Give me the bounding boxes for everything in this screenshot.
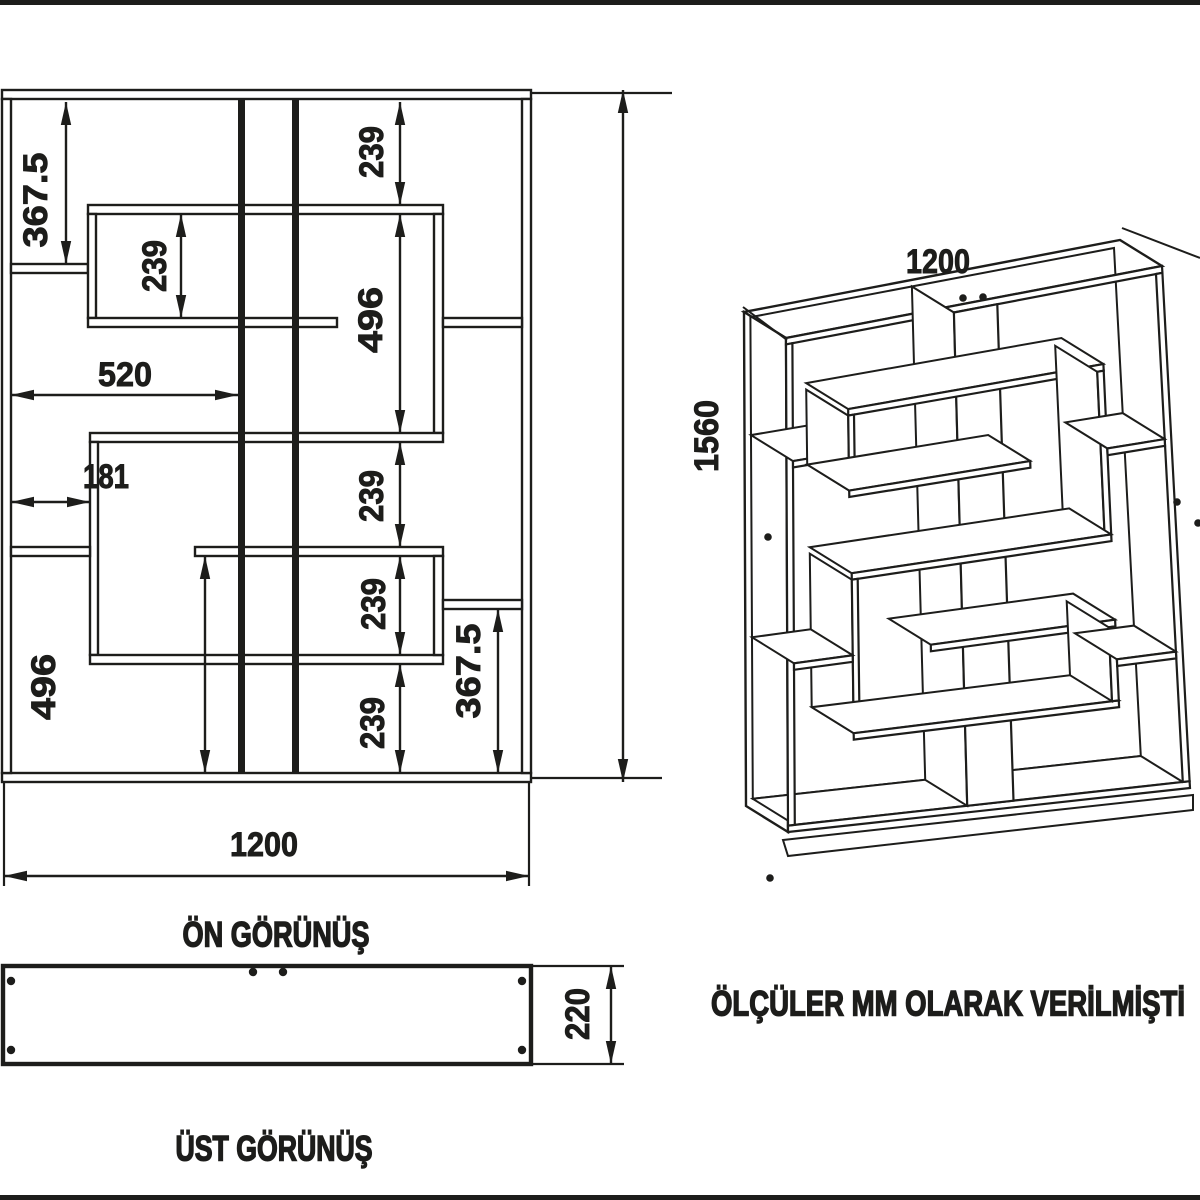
front-member-shelf-b: [11, 547, 90, 556]
top-view-title: ÜST GÖRÜNÜŞ: [176, 1130, 373, 1169]
hole-dot: [279, 968, 287, 976]
dim-label: 367.5: [17, 153, 55, 248]
front-member-shelf-a: [11, 264, 88, 273]
dim-arrow: [395, 556, 405, 579]
front-member-boxu-top: [88, 205, 443, 214]
front-member-divider-v2: [292, 99, 299, 773]
dim-arrow: [395, 214, 405, 237]
dimension-496: 496: [352, 214, 405, 433]
dim-arrow: [11, 497, 34, 507]
hole-dot: [518, 977, 526, 985]
dim-arrow: [395, 750, 405, 773]
dimension-239: 239: [353, 442, 405, 547]
dim-arrow: [606, 1041, 616, 1064]
dimension-239: 239: [353, 102, 405, 205]
page-border-bar: [0, 1195, 1200, 1200]
dim-arrow: [395, 410, 405, 433]
dim-arrow: [4, 871, 27, 881]
hole-dot: [518, 1046, 526, 1054]
front-member-boxu-right: [434, 214, 443, 433]
iso-view: 1200: [743, 228, 1200, 882]
dim-arrow: [61, 102, 71, 125]
iso-frame-left: [786, 343, 795, 825]
dim-label: 367.5: [450, 624, 488, 719]
fitting-dot: [959, 294, 967, 302]
dimension-239: 239: [136, 214, 186, 318]
top-view: 220: [3, 966, 624, 1064]
dim-label: 496: [25, 654, 63, 720]
iso-width-label: 1200: [906, 243, 970, 281]
dim-label: 220: [559, 988, 597, 1040]
dim-label: 496: [352, 287, 390, 353]
fitting-dot: [766, 874, 774, 882]
dimension-520: 520: [11, 356, 238, 400]
dim-label: 239: [353, 126, 391, 178]
dim-arrow: [395, 632, 405, 655]
dimension-367.5: 367.5: [17, 102, 71, 264]
dim-arrow: [11, 390, 34, 400]
fitting-dot: [1194, 519, 1200, 527]
front-view-title: ÖN GÖRÜNÜŞ: [183, 916, 370, 955]
fitting-dot: [979, 293, 987, 301]
dim-label: 1200: [230, 826, 298, 864]
dim-label: 181: [83, 458, 129, 496]
dim-arrow: [395, 524, 405, 547]
dim-arrow: [493, 609, 503, 632]
dim-arrow: [200, 750, 210, 773]
front-member-frame-bottom: [2, 773, 531, 782]
dim-arrow: [61, 241, 71, 264]
front-member-shelf-m-right: [434, 556, 443, 655]
hole-dot: [7, 977, 15, 985]
top-view-panel: [3, 966, 531, 1064]
front-member-frame-left: [2, 99, 11, 773]
fitting-dot: [764, 533, 772, 541]
dim-label: 1560: [688, 400, 726, 472]
dim-label: 239: [355, 578, 393, 630]
front-view: 367.5239239496520181239239239367.5496156…: [2, 90, 726, 886]
dimension-1560: 1560: [618, 90, 726, 782]
dim-arrow: [493, 750, 503, 773]
fitting-dot: [1173, 498, 1181, 506]
dimension-1200: 1200: [4, 826, 529, 881]
front-member-boxl-bottom: [90, 655, 443, 664]
dim-arrow: [200, 556, 210, 579]
dim-label: 239: [354, 697, 392, 749]
dim-arrow: [395, 442, 405, 465]
dim-arrow: [506, 871, 529, 881]
dim-arrow: [67, 497, 90, 507]
dimension-181: 181: [11, 458, 129, 507]
front-member-boxl-top: [90, 433, 443, 442]
dim-arrow: [176, 214, 186, 237]
dim-label: 520: [98, 356, 152, 394]
dimension-220: 220: [559, 966, 616, 1064]
dim-arrow: [395, 102, 405, 125]
drawing-sheet: 367.5239239496520181239239239367.5496156…: [0, 0, 1200, 1200]
dim-arrow: [395, 664, 405, 687]
hole-dot: [249, 968, 257, 976]
iso-frame-right: [1156, 273, 1190, 782]
dim-label: 239: [353, 470, 391, 522]
page-border-bar: [0, 0, 1200, 5]
furniture-technical-drawing: 367.5239239496520181239239239367.5496156…: [0, 0, 1200, 1200]
dim-arrow: [606, 966, 616, 989]
front-member-boxu-left: [88, 214, 96, 318]
front-member-divider-v1: [238, 99, 245, 773]
front-member-frame-top: [2, 90, 531, 99]
dimension-239: 239: [355, 556, 405, 655]
dim-arrow: [395, 182, 405, 205]
hole-dot: [7, 1046, 15, 1054]
front-member-shelf-m: [195, 547, 443, 556]
dim-arrow: [215, 390, 238, 400]
front-member-shelf-r3: [443, 600, 522, 609]
front-member-shelf-r1: [443, 318, 522, 327]
front-member-boxu-bottom: [88, 318, 337, 327]
dim-arrow: [176, 295, 186, 318]
dimension-239: 239: [354, 664, 405, 773]
front-member-frame-right: [522, 99, 531, 773]
dimension-367.5: 367.5: [450, 609, 503, 773]
dim-label: 239: [136, 240, 174, 292]
units-note: ÖLÇÜLER MM OLARAK VERİLMİŞTİ: [711, 985, 1185, 1024]
